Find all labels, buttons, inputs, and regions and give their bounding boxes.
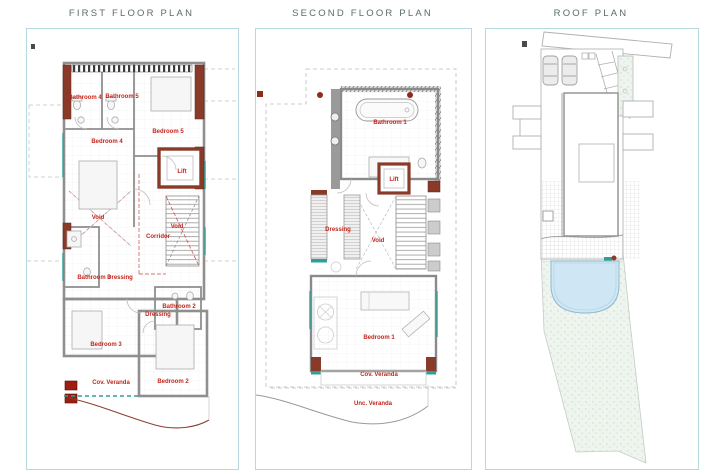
second-floor-plan-title: SECOND FLOOR PLAN xyxy=(255,8,470,19)
room-label: Bedroom 1 xyxy=(363,335,394,341)
room-label: Corridor xyxy=(146,234,170,240)
room-label: Bathroom 2 xyxy=(162,304,195,310)
first-floor-plan-title: FIRST FLOOR PLAN xyxy=(26,8,237,19)
room-label: Dressing xyxy=(107,275,133,281)
room-label: Void xyxy=(372,238,385,244)
room-label: Bedroom 4 xyxy=(91,139,122,145)
room-label: Cov. Veranda xyxy=(360,372,398,378)
window-band xyxy=(72,65,192,72)
section-marker xyxy=(31,44,35,49)
roof-plan-panel xyxy=(485,28,699,470)
room-label: Bathroom 4 xyxy=(68,95,101,101)
pool xyxy=(551,256,619,314)
room-label: Bathroom 1 xyxy=(373,120,406,126)
room-label: Bedroom 5 xyxy=(152,129,183,135)
room-label: Unc. Veranda xyxy=(354,401,392,407)
roof-slab xyxy=(562,93,618,236)
room-label: Bedroom 3 xyxy=(90,342,121,348)
boundary-marker xyxy=(257,91,263,97)
room-label: Dressing xyxy=(145,312,171,318)
room-label: Lift xyxy=(389,177,398,183)
roof-plan-title: ROOF PLAN xyxy=(485,8,697,19)
room-label: Void xyxy=(171,224,184,230)
room-label: Cov. Veranda xyxy=(92,380,130,386)
roof-plan-drawing xyxy=(486,29,698,470)
floor-plans-sheet: FIRST FLOOR PLAN xyxy=(0,0,705,476)
second-floor-plan-panel: Bathroom 1 Lift Dressing Void Bedroom 1 … xyxy=(255,28,472,470)
room-label: Bedroom 2 xyxy=(157,379,188,385)
lift-shaft xyxy=(159,149,201,187)
room-label: Bathroom 3 xyxy=(77,275,110,281)
veranda-lines xyxy=(256,371,456,424)
site-boundary-curve xyxy=(69,396,209,428)
room-label: Dressing xyxy=(325,227,351,233)
room-label: Bathroom 5 xyxy=(105,94,138,100)
void-cross xyxy=(356,196,396,269)
room-label: Void xyxy=(92,215,105,221)
room-label: Lift xyxy=(177,169,186,175)
section-marker xyxy=(522,41,527,47)
first-floor-plan-panel: Bathroom 4 Bathroom 5 Bedroom 5 Bedroom … xyxy=(26,28,239,470)
